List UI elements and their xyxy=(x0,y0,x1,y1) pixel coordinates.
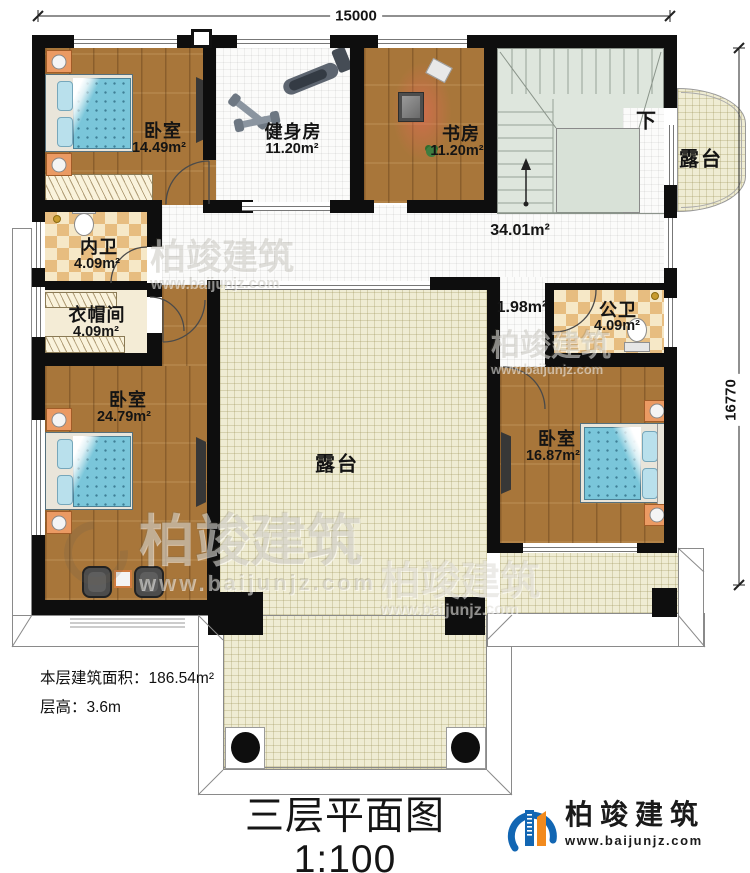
room-label-terrace-center: 露台 xyxy=(315,448,359,477)
wall-corridor-west xyxy=(487,277,500,553)
note-floor-height: 层高：3.6m xyxy=(40,693,214,722)
area-label-gym: 11.20m² xyxy=(265,141,318,157)
plan-title: 三层平面图1:100 xyxy=(208,796,482,873)
floor-plan: 15000 16770 卧室 14.49m² 健身房 11.20m² 书房 11… xyxy=(0,0,750,873)
wall-bedroom-bl-east xyxy=(207,280,220,600)
wall-bath-inner-east xyxy=(147,283,162,297)
window xyxy=(74,35,177,48)
wardrobe-tl xyxy=(45,174,153,201)
note-floor-area: 本层建筑面积：186.54m² xyxy=(40,664,214,693)
area-label-bedroom-tl: 14.49m² xyxy=(132,140,186,156)
column xyxy=(451,732,480,763)
brand-name: 柏竣建筑 xyxy=(565,800,705,831)
tv-bedroom-bl xyxy=(196,437,206,507)
window xyxy=(237,35,330,48)
wall-partition xyxy=(350,48,364,213)
label-stairs-down: 下 xyxy=(636,105,658,134)
wall-right xyxy=(664,35,677,108)
area-label-bedroom-br: 16.87m² xyxy=(526,448,580,464)
wall-hall-north xyxy=(330,200,364,213)
sliding-door-gym xyxy=(242,202,330,211)
window xyxy=(32,222,45,268)
bed-bl xyxy=(45,432,133,510)
bed-tl xyxy=(45,74,133,152)
window xyxy=(664,218,677,268)
wall-hall-north xyxy=(407,200,484,213)
side-table-icon xyxy=(114,570,132,588)
computer-monitor-icon xyxy=(398,92,424,122)
ledge-right xyxy=(678,548,704,647)
area-label-study: 11.20m² xyxy=(430,143,483,159)
area-label-bath-public: 4.09m² xyxy=(594,318,640,334)
wall-bath-cloak-divider xyxy=(45,281,147,290)
room-label-terrace-side: 露台 xyxy=(679,143,723,172)
wall-corridor-east xyxy=(545,283,554,353)
hallway-floor xyxy=(162,205,664,285)
area-label-hall: 34.01m² xyxy=(490,222,550,240)
window xyxy=(523,543,637,553)
nightstand xyxy=(46,511,72,534)
tv-bedroom-br xyxy=(501,432,511,494)
wall-right xyxy=(664,347,677,553)
wall-cloak-bottom xyxy=(45,353,162,366)
wall-bath-public-north xyxy=(554,283,664,290)
wall-right xyxy=(664,268,677,298)
window xyxy=(32,420,45,535)
wall-partition xyxy=(484,48,497,213)
bedroom-tl-doorway-floor xyxy=(203,158,216,206)
column xyxy=(231,732,260,763)
plan-title-scale: 1:100 xyxy=(294,838,397,873)
corridor-198-floor xyxy=(500,277,545,367)
area-label-corridor: 1.98m² xyxy=(497,299,548,317)
wall-bedroom-br-north xyxy=(545,353,664,367)
area-label-bedroom-bl: 24.79m² xyxy=(97,409,151,425)
window xyxy=(664,298,677,347)
wall-right xyxy=(664,185,677,218)
stair-landing xyxy=(556,128,640,213)
brand-logo: 柏竣建筑 www.baijunjz.com xyxy=(505,800,705,858)
pillar-block xyxy=(652,588,677,617)
chair-icon xyxy=(82,566,112,598)
top-wall-niche xyxy=(191,29,212,48)
plan-notes: 本层建筑面积：186.54m² 层高：3.6m xyxy=(40,664,214,723)
nightstand xyxy=(46,153,72,176)
pillar-block xyxy=(445,597,485,635)
ledge-bottom-left xyxy=(12,615,210,647)
area-label-cloakroom: 4.09m² xyxy=(73,324,119,340)
wall-partition xyxy=(203,48,216,160)
terrace-door xyxy=(665,125,677,185)
window xyxy=(32,287,45,337)
dimension-top: 15000 xyxy=(330,8,382,25)
brand-logo-icon xyxy=(505,800,557,858)
nightstand xyxy=(46,408,72,431)
wall-bath-inner-top xyxy=(45,200,147,212)
wall-bath-inner-east xyxy=(147,200,162,247)
wall-terrace-north-stub xyxy=(430,277,492,290)
brand-url: www.baijunjz.com xyxy=(565,833,705,848)
dimension-right: 16770 xyxy=(723,374,740,426)
area-label-bath-inner: 4.09m² xyxy=(74,256,120,272)
sliding-door-terrace xyxy=(225,281,430,290)
wall-bedroom-bl-south xyxy=(32,600,220,615)
chair-icon xyxy=(134,566,164,598)
plan-title-block: 三层平面图1:100 xyxy=(208,796,482,873)
nightstand xyxy=(46,50,72,73)
brand-text-block: 柏竣建筑 www.baijunjz.com xyxy=(565,800,705,848)
plan-title-text: 三层平面图 xyxy=(245,795,445,838)
window xyxy=(378,35,467,48)
ledge-left xyxy=(12,228,32,647)
bed-br xyxy=(580,423,668,503)
wall-hall-north xyxy=(364,200,374,213)
ledge-bottom-right xyxy=(487,613,705,647)
